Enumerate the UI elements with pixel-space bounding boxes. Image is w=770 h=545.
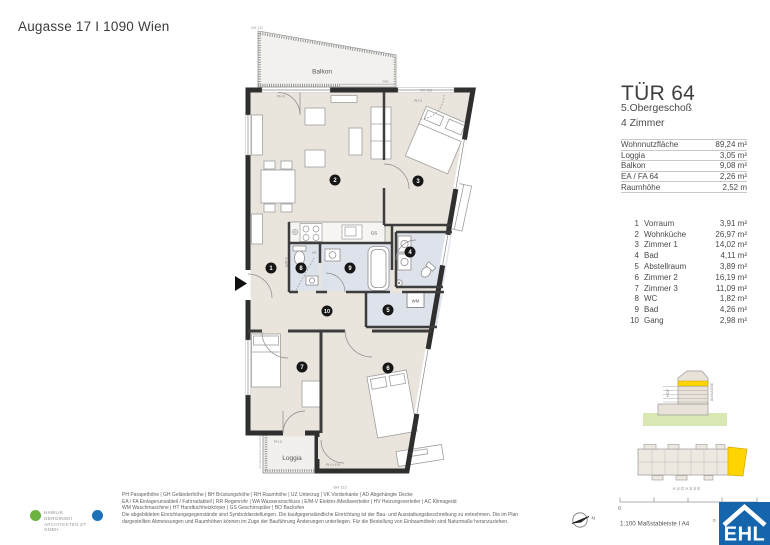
room-area: 11,09 m² [716, 284, 747, 293]
area-row: EA / FA 642,26 m² [621, 171, 747, 182]
highlighted-unit [728, 447, 747, 476]
area-label: EA / FA 64 [621, 172, 658, 181]
room-row: 7Zimmer 311,09 m² [621, 283, 747, 294]
room-area: 4,26 m² [720, 305, 747, 314]
section-street-label: AUGASSE [710, 382, 714, 401]
room-row: 4Bad4,11 m² [621, 250, 747, 261]
area-row: Wohnnutzfläche89,24 m² [621, 139, 747, 150]
room-area: 1,82 m² [720, 294, 747, 303]
area-row: Raumhöhe2,52 m [621, 181, 747, 193]
svg-text:FIX 100: FIX 100 [420, 89, 433, 93]
architect-badge-blue-icon [92, 510, 103, 521]
room-area: 16,19 m² [715, 273, 747, 282]
room-badge: 10 [324, 309, 330, 315]
room-row: 5Abstellraum3,89 m² [621, 261, 747, 272]
legend-line: WM Waschmaschine | HT Handtuchheizkörper… [122, 505, 558, 512]
area-summary-table: Wohnnutzfläche89,24 m² Loggia3,05 m² Bal… [621, 139, 747, 193]
room-row: 8WC1,82 m² [621, 294, 747, 305]
scale-label: 1:100 Maßstableiste I A4 [620, 521, 690, 528]
room-number: 3 [621, 240, 639, 249]
towel-radiator-label: HT [312, 251, 318, 255]
area-value: 3,05 m² [720, 151, 747, 160]
room-row: 10Gang2,98 m² [621, 315, 747, 326]
room-number: 7 [621, 284, 639, 293]
area-label: Wohnnutzfläche [621, 140, 678, 149]
svg-text:PH 0: PH 0 [414, 99, 422, 103]
room-number: 4 [621, 251, 639, 260]
svg-text:PH 0 FIX: PH 0 FIX [326, 463, 341, 467]
area-value: 89,24 m² [715, 140, 747, 149]
entry-arrow-icon [235, 276, 247, 291]
room-area: 3,89 m² [720, 262, 747, 271]
abbreviation-legend: PH Parapethöhe | GH Geländerhöhe | BH Br… [122, 492, 558, 526]
room-name: Gang [644, 316, 720, 325]
scale-right-mark: 0 [713, 518, 716, 523]
room-number: 10 [621, 316, 639, 325]
room-name: Bad [644, 251, 720, 260]
room-area: 3,91 m² [720, 219, 747, 228]
architect-badge-green-icon [30, 510, 41, 521]
room-row: 6Zimmer 216,19 m² [621, 272, 747, 283]
highlighted-floor [678, 381, 708, 386]
room-area: 26,97 m² [715, 230, 747, 239]
scale-zero: 0 [618, 506, 621, 512]
area-value: 2,52 m [723, 183, 747, 192]
building-section-diagram: HOF AUGASSE [643, 371, 727, 426]
legend-line: EA / FA Einlagerunsabteil / Fahrradabtei… [122, 499, 558, 506]
legend-line: Die abgebildeten Einrichtungsgegenstände… [122, 512, 558, 519]
siteplan-street-label: AUGASSE [673, 486, 702, 491]
room-row: 9Bad4,26 m² [621, 304, 747, 315]
area-row: Loggia3,05 m² [621, 150, 747, 161]
area-row: Balkon9,08 m² [621, 160, 747, 171]
floorplan-page: { "header": { "address": "Augasse 17 I 1… [0, 0, 770, 545]
room-number: 5 [621, 262, 639, 271]
room-row: 1Vorraum3,91 m² [621, 218, 747, 229]
room-area: 4,11 m² [720, 251, 747, 260]
legend-line: dargestellten Abmessungen und Raumhöhen … [122, 519, 558, 526]
room-number: 9 [621, 305, 639, 314]
svg-text:PH 0: PH 0 [277, 95, 285, 99]
room-number: 8 [621, 294, 639, 303]
room-name: Zimmer 3 [644, 284, 716, 293]
room-name: Bad [644, 305, 720, 314]
legend-line: PH Parapethöhe | GH Geländerhöhe | BH Br… [122, 492, 558, 499]
room-area: 14,02 m² [715, 240, 747, 249]
loggia-label: Loggia [282, 455, 302, 462]
dim-sonnenschutz: Sonnenschutz raumhoch [258, 435, 262, 469]
area-label: Raumhöhe [621, 183, 660, 192]
area-value: 2,26 m² [720, 172, 747, 181]
loggia-area: Loggia Sonnenschutz raumhoch [258, 433, 317, 473]
svg-text:PH 0: PH 0 [274, 440, 282, 444]
room-number: 1 [621, 219, 639, 228]
section-hof-label: HOF [665, 388, 670, 397]
dim-gh112-top: GH 112 [251, 26, 263, 30]
room-name: WC [644, 294, 720, 303]
room-name: Abstellraum [644, 262, 720, 271]
room-name: Zimmer 2 [644, 273, 715, 282]
ehl-logo-text: EHL [724, 524, 766, 545]
north-label: N [592, 516, 595, 521]
room-list: 1Vorraum3,91 m² 2Wohnküche26,97 m² 3Zimm… [621, 218, 747, 326]
area-value: 9,08 m² [720, 161, 747, 170]
kitchen-counter: GS [289, 222, 385, 243]
ehl-logo: EHL [719, 502, 770, 545]
room-row: 2Wohnküche26,97 m² [621, 229, 747, 240]
dishwasher-label: GS [371, 231, 378, 236]
room-name: Zimmer 1 [644, 240, 715, 249]
room-number: 6 [621, 273, 639, 282]
dim-glas: Glas [382, 80, 389, 84]
room-name: Wohnküche [644, 230, 715, 239]
room-row: 3Zimmer 114,02 m² [621, 240, 747, 251]
washing-machine-label: WM [412, 299, 420, 304]
site-plan-diagram: AUGASSE [638, 445, 747, 492]
unit-floor: 5.Obergeschoß [621, 103, 692, 114]
room-area: 2,98 m² [720, 316, 747, 325]
balkon-area: Balkon GH 112 Glas [251, 26, 396, 87]
room-name: Vorraum [644, 219, 720, 228]
architect-name: HAWLIK GERGINSKI ARCHITEKTEN ZT GMBH [44, 510, 90, 533]
room-number: 2 [621, 230, 639, 239]
unit-room-count: 4 Zimmer [621, 118, 664, 129]
svg-text:GH 112: GH 112 [333, 485, 347, 490]
area-label: Balkon [621, 161, 645, 170]
architect-name-line1: HAWLIK GERGINSKI [44, 510, 90, 522]
north-compass-icon: N [572, 513, 595, 527]
area-label: Loggia [621, 151, 645, 160]
balkon-label: Balkon [312, 69, 332, 76]
architect-name-line2: ARCHITEKTEN ZT GMBH [44, 522, 90, 534]
